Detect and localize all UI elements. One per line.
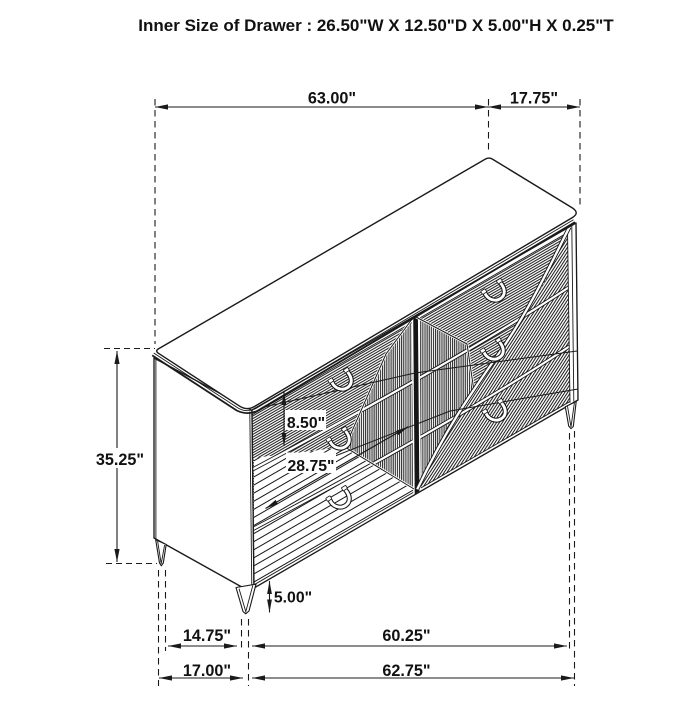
svg-text:17.75": 17.75" — [510, 90, 558, 108]
svg-text:35.25": 35.25" — [96, 451, 144, 469]
svg-text:63.00": 63.00" — [308, 90, 356, 108]
svg-text:17.00": 17.00" — [183, 662, 231, 680]
svg-text:8.50": 8.50" — [287, 415, 325, 432]
svg-text:62.75": 62.75" — [382, 662, 430, 680]
svg-text:60.25": 60.25" — [382, 627, 430, 645]
svg-text:14.75": 14.75" — [183, 627, 231, 645]
svg-text:28.75": 28.75" — [287, 458, 334, 475]
svg-text:5.00": 5.00" — [274, 590, 312, 607]
svg-text:Inner Size of Drawer : 26.50"W: Inner Size of Drawer : 26.50"W X 12.50"D… — [138, 16, 614, 35]
